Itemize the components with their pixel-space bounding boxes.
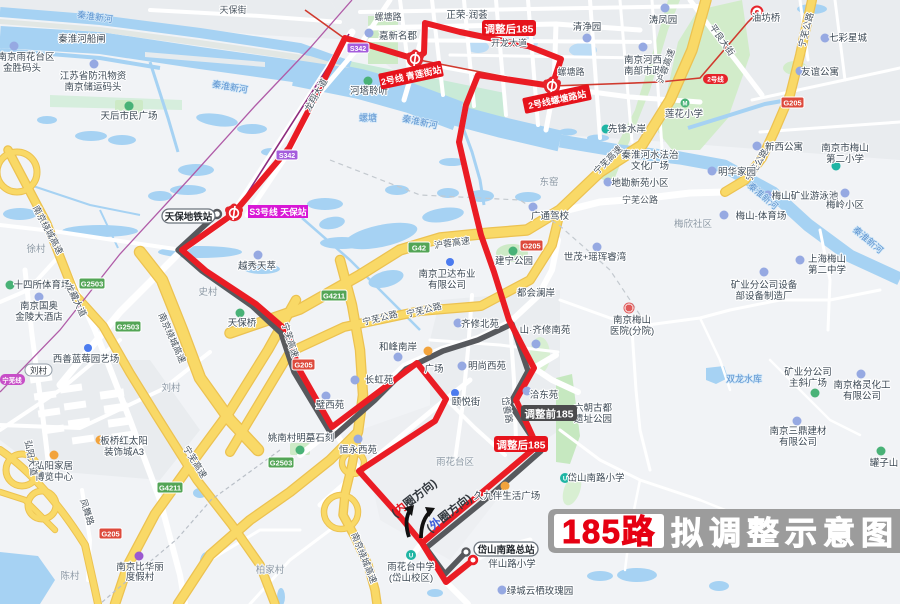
svg-text:齐修北苑: 齐修北苑 [461,318,500,330]
svg-text:G2503: G2503 [117,323,140,332]
svg-text:梅山-体育场: 梅山-体育场 [736,210,787,222]
svg-text:主斜广场: 主斜广场 [789,377,827,389]
svg-text:莲花小学: 莲花小学 [665,108,703,120]
svg-text:矿业分公司: 矿业分公司 [784,366,832,378]
svg-text:G2503: G2503 [270,459,293,468]
svg-text:第二小学: 第二小学 [826,153,864,165]
svg-text:颐悦街: 颐悦街 [452,396,481,408]
svg-text:洽东苑: 洽东苑 [530,389,559,401]
svg-text:南京市梅山: 南京市梅山 [821,142,869,154]
svg-text:上海梅山: 上海梅山 [808,253,846,265]
svg-text:有限公司: 有限公司 [779,436,817,448]
svg-text:螺塘路: 螺塘路 [557,66,584,77]
svg-text:建宁公园: 建宁公园 [495,255,533,267]
svg-text:七彩星城: 七彩星城 [829,33,868,44]
svg-text:装饰城A3: 装饰城A3 [104,446,144,458]
svg-text:拟调整示意图: 拟调整示意图 [671,515,899,551]
svg-text:绿城云栖玫瑰园: 绿城云栖玫瑰园 [507,585,574,597]
svg-text:矿业分公司设备: 矿业分公司设备 [731,279,798,291]
svg-text:南京雨花台区: 南京雨花台区 [0,51,55,63]
svg-text:南京卫达布业: 南京卫达布业 [418,268,475,280]
svg-text:天保街: 天保街 [219,4,246,15]
svg-text:G205: G205 [522,242,540,251]
svg-text:开龙大道: 开龙大道 [491,37,527,48]
svg-text:嘉新名郡: 嘉新名郡 [379,30,418,42]
svg-text:梅岭小区: 梅岭小区 [826,199,865,211]
svg-text:G4211: G4211 [323,292,345,301]
svg-text:调整前185: 调整前185 [524,408,573,421]
svg-text:涛凤园: 涛凤园 [649,14,678,26]
svg-text:江苏省防汛物资: 江苏省防汛物资 [60,70,127,82]
svg-text:姚南村明墓石刻: 姚南村明墓石刻 [268,432,335,444]
svg-text:罐子山: 罐子山 [870,457,899,469]
svg-text:医院(分院): 医院(分院) [610,325,654,337]
svg-text:久九伴生活广场: 久九伴生活广场 [474,490,541,502]
svg-text:文化广场: 文化广场 [631,160,669,172]
svg-text:宁芜公路: 宁芜公路 [622,194,658,205]
svg-text:金胜码头: 金胜码头 [3,62,41,74]
svg-text:山·齐修南苑: 山·齐修南苑 [520,324,571,336]
svg-text:G205: G205 [101,530,119,539]
svg-text:秦淮河船闸: 秦淮河船闸 [58,33,106,45]
svg-text:越秀天萃: 越秀天萃 [238,260,276,272]
svg-text:G4211: G4211 [159,484,181,493]
svg-text:世茂+瑶珲睿湾: 世茂+瑶珲睿湾 [564,251,627,263]
svg-text:板桥红太阳: 板桥红太阳 [100,435,148,447]
svg-text:明华家园: 明华家园 [718,166,756,178]
svg-text:遗址公园: 遗址公园 [574,413,612,425]
svg-text:先锋水岸: 先锋水岸 [608,123,647,135]
svg-text:2号线: 2号线 [707,75,724,84]
svg-text:陈村: 陈村 [60,570,80,582]
svg-text:弘阳家居: 弘阳家居 [35,460,73,472]
svg-text:雨花台区: 雨花台区 [436,456,475,468]
svg-text:都会澜岸: 都会澜岸 [517,287,556,299]
svg-text:南京储运码头: 南京储运码头 [64,81,121,93]
svg-text:史村: 史村 [198,286,218,298]
svg-text:第二中学: 第二中学 [808,264,846,276]
svg-text:刘村: 刘村 [30,366,48,376]
svg-text:广通驾校: 广通驾校 [531,210,570,222]
svg-text:南京国奥: 南京国奥 [20,300,59,312]
svg-text:明尚西苑: 明尚西苑 [468,360,507,372]
svg-text:友谊公寓: 友谊公寓 [801,66,839,78]
svg-text:十四所体育场: 十四所体育场 [13,279,70,291]
svg-text:博览中心: 博览中心 [35,471,74,483]
svg-text:伴山路小学: 伴山路小学 [488,558,536,570]
svg-text:天后市民广场: 天后市民广场 [100,110,157,122]
svg-text:G205: G205 [783,99,801,108]
svg-text:天保地铁站: 天保地铁站 [165,211,213,223]
svg-text:长虹苑: 长虹苑 [365,374,394,386]
svg-text:G2503: G2503 [81,280,104,289]
svg-text:G42: G42 [412,244,426,253]
svg-text:调整后185: 调整后185 [496,439,545,452]
svg-text:梅欣社区: 梅欣社区 [674,218,713,230]
svg-text:璧西苑: 璧西苑 [316,399,345,411]
svg-text:U: U [409,554,413,560]
svg-text:金陵大酒店: 金陵大酒店 [15,311,63,323]
svg-text:(岱山校区): (岱山校区) [389,572,433,584]
svg-text:调整后185: 调整后185 [484,23,533,36]
svg-text:G205: G205 [294,361,312,370]
svg-text:新西公寓: 新西公寓 [765,141,803,153]
svg-text:恒永西苑: 恒永西苑 [339,444,378,456]
svg-text:南京三鼎建材: 南京三鼎建材 [769,425,827,437]
svg-text:地勘新苑小区: 地勘新苑小区 [611,177,669,189]
svg-text:雨花台中学: 雨花台中学 [387,561,435,573]
svg-text:S3号线 天保站: S3号线 天保站 [249,206,306,217]
svg-text:M: M [683,102,688,108]
svg-text:南京河西: 南京河西 [624,54,662,66]
svg-text:岱山南路小学: 岱山南路小学 [567,472,624,484]
svg-text:刘村: 刘村 [161,382,181,394]
svg-text:S342: S342 [350,46,366,53]
svg-text:岱山南路总站: 岱山南路总站 [476,544,535,556]
svg-text:有限公司: 有限公司 [843,390,881,402]
svg-text:广场: 广场 [424,363,443,375]
svg-text:螺塘路: 螺塘路 [374,11,401,22]
svg-text:宁芜线: 宁芜线 [2,376,22,385]
svg-text:清浄园: 清浄园 [573,21,602,33]
svg-text:部设备制造厂: 部设备制造厂 [735,290,792,302]
svg-text:六朝古都: 六朝古都 [574,402,613,414]
svg-text:度假村: 度假村 [126,571,155,583]
svg-text:柏家村: 柏家村 [256,564,285,576]
svg-text:天保桥: 天保桥 [228,317,257,329]
svg-text:和峰南岸: 和峰南岸 [379,341,418,353]
svg-text:油坊桥: 油坊桥 [752,12,781,24]
svg-text:正荣·润荟: 正荣·润荟 [446,9,488,21]
svg-text:秦淮河水法治: 秦淮河水法治 [621,149,678,161]
svg-text:南京梅山: 南京梅山 [613,314,651,326]
svg-text:螺塘: 螺塘 [359,112,377,123]
svg-text:有限公司: 有限公司 [428,279,466,291]
svg-text:南京格灵化工: 南京格灵化工 [833,379,891,391]
svg-text:185路: 185路 [562,513,656,550]
svg-text:西善蓝莓园艺场: 西善蓝莓园艺场 [53,353,120,365]
svg-text:东窑: 东窑 [539,176,558,188]
svg-text:S342: S342 [279,153,295,160]
svg-text:双龙水库: 双龙水库 [726,373,762,384]
svg-text:徐村: 徐村 [26,243,46,255]
